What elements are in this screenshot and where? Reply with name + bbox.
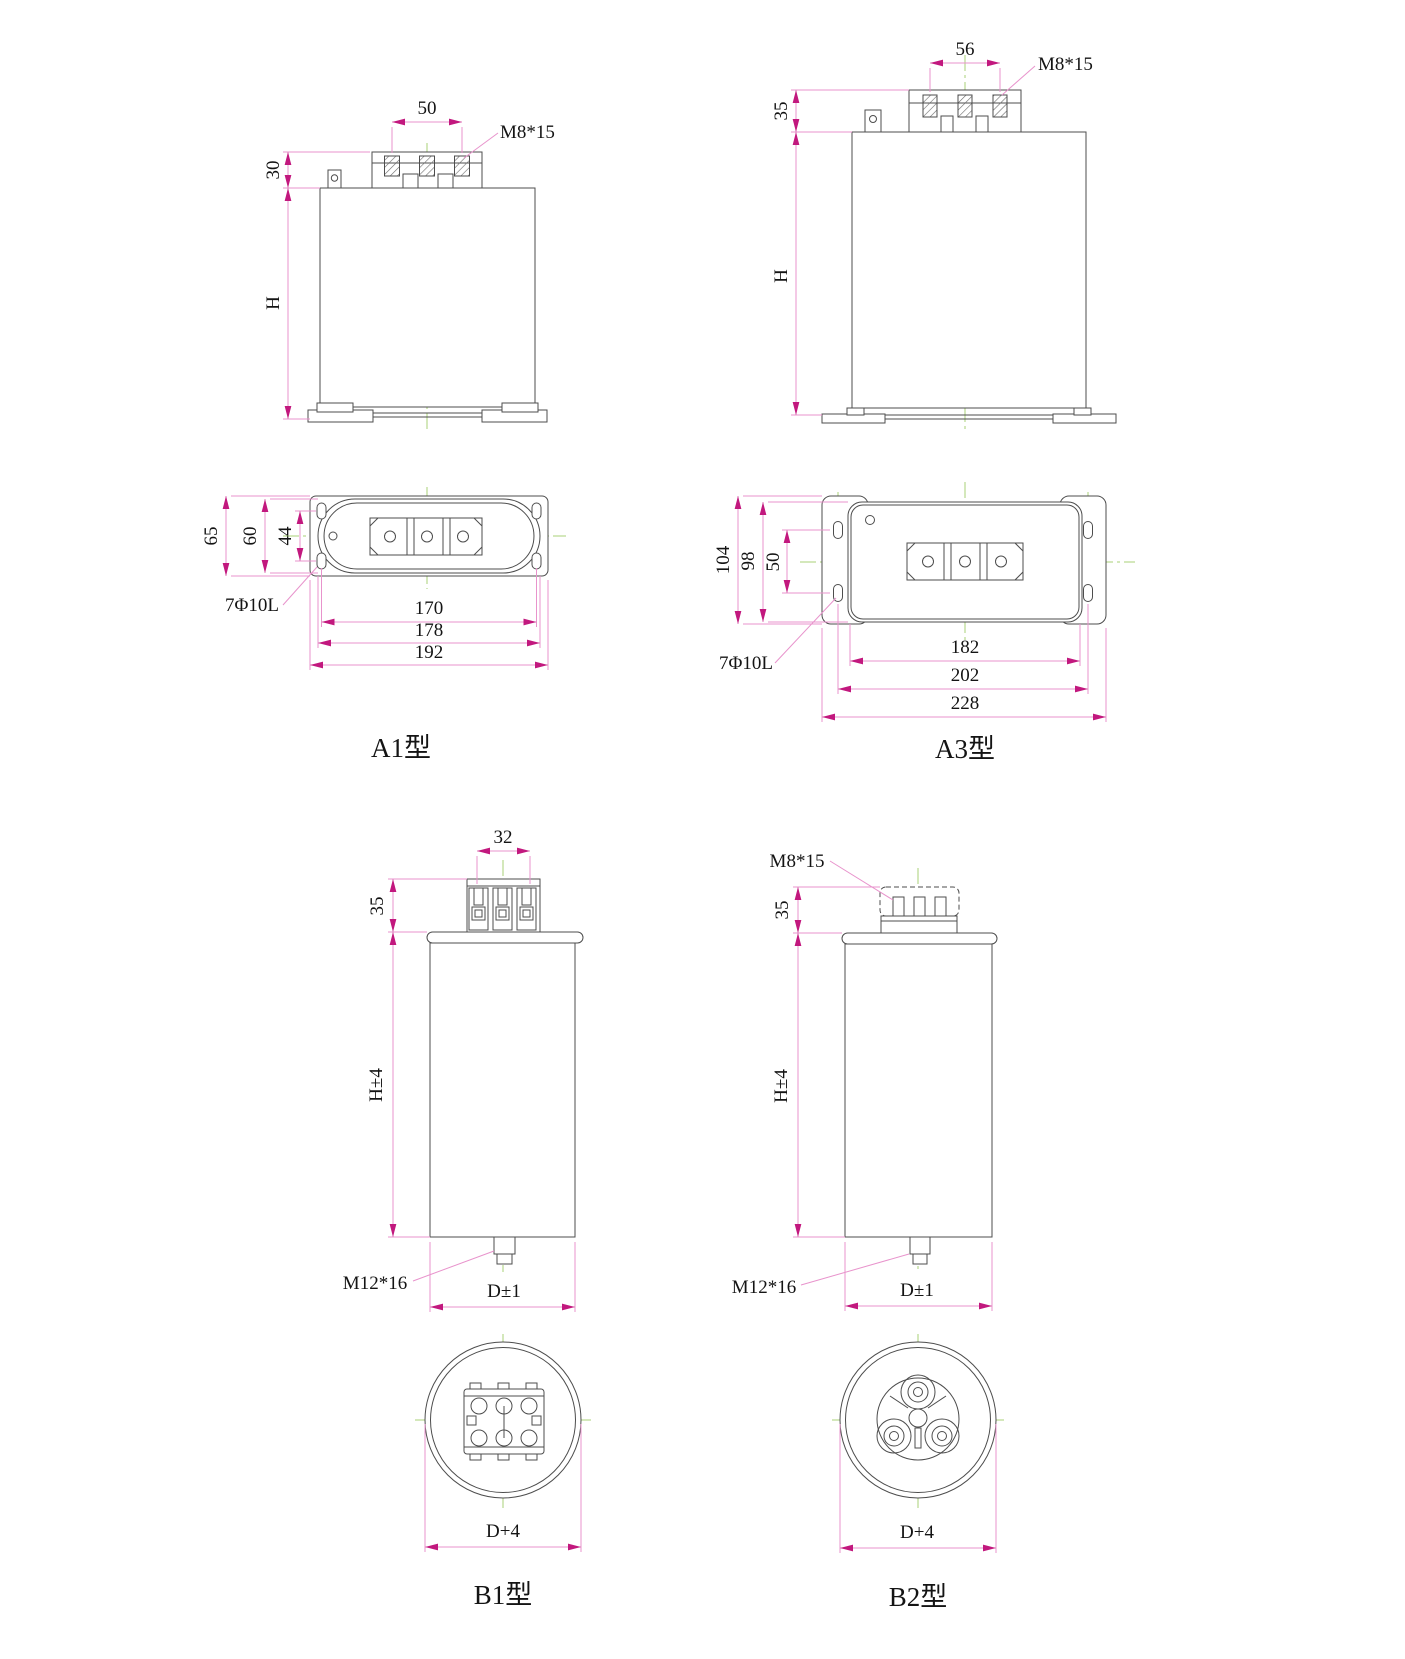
label-bottom-stud: M12*16 (732, 1277, 796, 1298)
caption-b2: B2型 (889, 1582, 948, 1612)
dim-diameter: D±1 (487, 1281, 521, 1302)
dim-terminal-pitch: 56 (956, 39, 975, 60)
dim-terminal-pitch: 32 (494, 827, 513, 848)
bottom-stud (910, 1237, 930, 1254)
mounting-slot (317, 503, 326, 519)
body-outline (845, 944, 992, 1237)
dim-flange-width: 192 (415, 642, 444, 663)
a1-side-view (308, 143, 547, 430)
dim-head-height: 35 (772, 901, 793, 920)
a3-top-view (800, 482, 1135, 642)
dim-slot-pitch-h: 202 (951, 665, 980, 686)
terminal-stud (993, 95, 1007, 117)
dim-head-height: 30 (263, 161, 284, 180)
terminal-notch (976, 116, 988, 132)
side-tab (865, 110, 881, 132)
label-terminal-thread: M8*15 (500, 122, 555, 143)
leader-m8 (830, 861, 893, 900)
body-outline (852, 132, 1086, 408)
mounting-slot (532, 503, 541, 519)
dim-overall-diameter: D+4 (900, 1522, 934, 1543)
drawing-sheet: 50 M8*15 30 H (0, 0, 1405, 1659)
dim-terminal-pitch: 50 (418, 98, 437, 119)
mounting-slot (532, 553, 541, 569)
capacitor-dimension-drawing: 50 M8*15 30 H (0, 0, 1405, 1659)
caption-a1: A1型 (371, 733, 431, 763)
terminal-strip (907, 543, 1023, 580)
dim-body-width: 178 (415, 620, 444, 641)
terminal-notch (941, 116, 953, 132)
dim-head-height: 35 (367, 897, 388, 916)
dim-flange-depth: 104 (713, 545, 734, 574)
dim-body-depth: 98 (738, 552, 759, 571)
side-tab (328, 170, 341, 188)
dim-diameter: D±1 (900, 1280, 934, 1301)
dim-slot-pitch-v: 44 (275, 526, 296, 546)
terminal-stud (923, 95, 937, 117)
dim-flange-width: 228 (951, 693, 980, 714)
dim-body-width: 182 (951, 637, 980, 658)
b1-bottom-view (415, 1334, 591, 1508)
top-rim (842, 933, 997, 944)
dim-flange-depth: 65 (201, 527, 222, 546)
terminal-stud (455, 156, 470, 176)
body-outline (430, 943, 575, 1237)
top-rim (427, 932, 583, 943)
body-outline (320, 188, 535, 407)
terminal-notch (403, 174, 418, 188)
dim-body-depth: 60 (240, 527, 261, 546)
leader-mount-hole (775, 598, 836, 663)
mounting-slot (1084, 522, 1093, 539)
terminal-base (881, 916, 957, 933)
terminal-strip (370, 518, 482, 555)
a3-side-view (822, 55, 1116, 432)
label-terminal-thread: M8*15 (1038, 54, 1093, 75)
terminal-notch (438, 174, 453, 188)
b2-bottom-view (832, 1334, 1004, 1508)
terminal-stud (893, 897, 904, 918)
b1-side-view (427, 860, 583, 1272)
dim-slot-pitch-v: 50 (763, 553, 784, 572)
dim-body-height: H±4 (366, 1068, 387, 1102)
terminal-stud (914, 897, 925, 918)
dim-body-height: H (771, 269, 792, 283)
bottom-stud-tip (497, 1254, 512, 1264)
terminal-stud (958, 95, 972, 117)
dim-body-height: H (263, 296, 284, 310)
bottom-stud (494, 1237, 515, 1254)
mounting-slot (1084, 585, 1093, 602)
caption-b1: B1型 (474, 1580, 533, 1610)
dim-body-height: H±4 (771, 1069, 792, 1103)
dim-head-height: 35 (771, 102, 792, 121)
a1-top-view (283, 487, 566, 589)
b2-side-view (842, 868, 997, 1272)
leader-m12 (801, 1254, 909, 1285)
label-bottom-stud: M12*16 (343, 1273, 407, 1294)
caption-a3: A3型 (935, 734, 995, 764)
label-mount-hole: 7Φ10L (719, 653, 773, 674)
mounting-slot (834, 522, 843, 539)
leader-m12 (413, 1251, 494, 1281)
mounting-slot (317, 553, 326, 569)
label-terminal-thread: M8*15 (770, 851, 825, 872)
label-mount-hole: 7Φ10L (225, 595, 279, 616)
dim-slot-pitch-h: 170 (415, 598, 444, 619)
terminal-stud (420, 156, 435, 176)
bottom-stud-tip (913, 1254, 927, 1264)
dim-overall-diameter: D+4 (486, 1521, 520, 1542)
terminal-stud (935, 897, 946, 918)
terminal-stud (385, 156, 400, 176)
foot-base-strip (885, 415, 1053, 419)
